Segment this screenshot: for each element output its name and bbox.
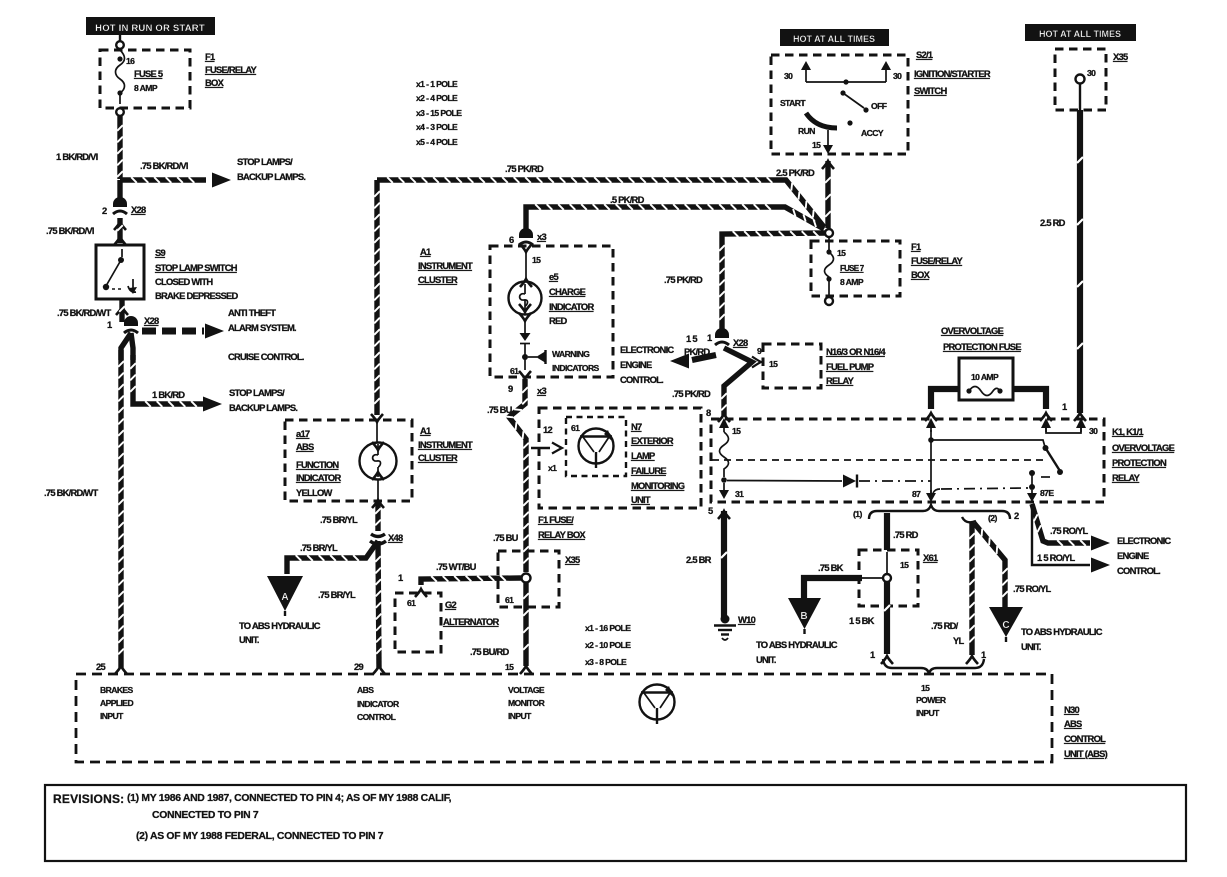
svg-text:STOP LAMPS/: STOP LAMPS/: [229, 387, 285, 398]
svg-text:.75 RO/YL: .75 RO/YL: [1013, 583, 1052, 594]
svg-text:X35: X35: [565, 554, 580, 565]
svg-text:A1: A1: [420, 425, 431, 436]
svg-text:TO ABS HYDRAULIC: TO ABS HYDRAULIC: [756, 639, 838, 650]
svg-text:1 5 BK: 1 5 BK: [849, 615, 875, 626]
svg-text:MONITOR: MONITOR: [508, 698, 546, 708]
svg-text:CLOSED WITH: CLOSED WITH: [155, 276, 213, 287]
svg-text:61: 61: [505, 595, 514, 605]
svg-text:ENGINE: ENGINE: [1117, 550, 1149, 561]
svg-text:.75 BK/RD/WT: .75 BK/RD/WT: [57, 307, 112, 318]
svg-text:1 5 RO/YL: 1 5 RO/YL: [1037, 552, 1076, 563]
svg-text:(1) MY 1986 AND 1987, CONNECTE: (1) MY 1986 AND 1987, CONNECTED TO PIN 4…: [127, 793, 452, 804]
svg-text:16: 16: [126, 56, 135, 66]
svg-text:ALARM SYSTEM.: ALARM SYSTEM.: [228, 322, 296, 333]
svg-text:30: 30: [1089, 426, 1098, 436]
svg-text:X28: X28: [144, 315, 159, 326]
svg-text:.5 PK/RD: .5 PK/RD: [610, 194, 645, 205]
svg-text:CHARGE: CHARGE: [549, 286, 586, 297]
svg-text:UNIT.: UNIT.: [756, 654, 776, 665]
svg-text:INSTRUMENT: INSTRUMENT: [418, 260, 473, 271]
svg-text:LAMP: LAMP: [631, 450, 655, 461]
svg-text:.75 BK: .75 BK: [818, 562, 844, 573]
svg-text:CONTROL.: CONTROL.: [620, 374, 663, 385]
svg-text:X61: X61: [923, 552, 938, 563]
svg-text:15: 15: [532, 255, 541, 265]
svg-text:WARNING: WARNING: [552, 349, 590, 359]
svg-text:15: 15: [505, 662, 514, 672]
svg-text:30: 30: [1087, 68, 1096, 78]
svg-text:FUSE/RELAY: FUSE/RELAY: [911, 255, 964, 266]
svg-text:ABS: ABS: [296, 441, 314, 452]
svg-text:.75 WT/BU: .75 WT/BU: [436, 561, 477, 572]
svg-text:.75 RO/YL: .75 RO/YL: [1050, 525, 1089, 536]
svg-text:30: 30: [893, 71, 902, 81]
svg-text:REVISIONS:: REVISIONS:: [53, 792, 124, 806]
svg-text:15: 15: [921, 683, 930, 693]
svg-text:X35: X35: [1113, 51, 1128, 62]
svg-text:x1: x1: [548, 463, 557, 473]
svg-text:15: 15: [812, 140, 821, 150]
svg-text:.75 PK/RD: .75 PK/RD: [672, 388, 711, 399]
svg-text:RELAY: RELAY: [826, 375, 855, 386]
svg-text:FUEL PUMP: FUEL PUMP: [826, 361, 874, 372]
svg-text:x2 - 10 POLE: x2 - 10 POLE: [585, 640, 631, 650]
svg-text:2.5 PK/RD: 2.5 PK/RD: [776, 167, 815, 178]
svg-text:1: 1: [707, 332, 712, 343]
svg-text:FUSE 7: FUSE 7: [840, 264, 865, 273]
svg-text:2: 2: [102, 205, 107, 216]
svg-text:.75 BR/YL: .75 BR/YL: [318, 589, 356, 600]
svg-text:x3 - 8 POLE: x3 - 8 POLE: [585, 657, 627, 667]
svg-text:.75 RD: .75 RD: [893, 529, 919, 540]
svg-text:1: 1: [981, 649, 986, 660]
svg-text:15: 15: [732, 426, 741, 436]
svg-text:UNIT.: UNIT.: [1021, 641, 1041, 652]
svg-text:B: B: [800, 611, 807, 622]
svg-text:CLUSTER: CLUSTER: [418, 274, 458, 285]
svg-text:OVERVOLTAGE: OVERVOLTAGE: [1112, 442, 1175, 453]
svg-text:61: 61: [407, 598, 416, 608]
svg-text:INPUT: INPUT: [100, 711, 124, 721]
svg-text:FUSE/RELAY: FUSE/RELAY: [205, 64, 258, 75]
svg-text:S9: S9: [155, 247, 166, 258]
svg-text:BACKUP LAMPS.: BACKUP LAMPS.: [229, 402, 297, 413]
svg-text:F1: F1: [205, 51, 215, 62]
svg-text:INSTRUMENT: INSTRUMENT: [418, 439, 473, 450]
svg-text:STOP LAMPS/: STOP LAMPS/: [237, 156, 293, 167]
svg-text:x3: x3: [537, 385, 546, 396]
svg-text:.75 BU: .75 BU: [493, 532, 519, 543]
svg-text:ABS: ABS: [1064, 718, 1082, 729]
svg-text:RUN: RUN: [798, 126, 815, 136]
svg-text:X28: X28: [131, 204, 146, 215]
svg-text:ELECTRONIC: ELECTRONIC: [1117, 535, 1171, 546]
svg-text:VOLTAGE: VOLTAGE: [508, 685, 545, 695]
svg-text:CLUSTER: CLUSTER: [418, 452, 458, 463]
svg-text:15: 15: [837, 248, 846, 258]
svg-text:8: 8: [706, 407, 711, 418]
svg-text:a17: a17: [296, 428, 310, 439]
svg-text:RELAY: RELAY: [1112, 472, 1141, 483]
svg-text:9: 9: [508, 383, 513, 394]
svg-text:87E: 87E: [1040, 488, 1054, 498]
svg-text:RED: RED: [549, 315, 568, 326]
svg-text:C: C: [1002, 620, 1009, 631]
svg-text:W10: W10: [738, 614, 756, 625]
svg-text:BRAKE DEPRESSED: BRAKE DEPRESSED: [155, 290, 238, 301]
svg-text:.75 PK/RD: .75 PK/RD: [505, 163, 544, 174]
svg-text:x1 - 1 POLE: x1 - 1 POLE: [416, 79, 458, 89]
svg-text:x3 - 15 POLE: x3 - 15 POLE: [416, 108, 462, 118]
svg-text:87: 87: [912, 489, 921, 499]
svg-text:F1: F1: [911, 241, 921, 252]
svg-text:IGNITION/STARTER: IGNITION/STARTER: [914, 68, 991, 79]
svg-text:PROTECTION FUSE: PROTECTION FUSE: [943, 341, 1021, 352]
svg-text:.75 BU/RD: .75 BU/RD: [470, 646, 510, 657]
svg-text:30: 30: [784, 71, 793, 81]
svg-text:1: 1: [398, 572, 403, 583]
svg-text:CRUISE CONTROL.: CRUISE CONTROL.: [228, 351, 304, 362]
svg-text:25: 25: [96, 661, 105, 672]
svg-text:POWER: POWER: [916, 695, 947, 705]
svg-text:.75 BK/RD/WT: .75 BK/RD/WT: [44, 487, 99, 498]
svg-text:BRAKES: BRAKES: [100, 685, 134, 695]
svg-text:FUNCTION: FUNCTION: [296, 459, 339, 470]
svg-text:START: START: [780, 98, 806, 108]
svg-text:STOP LAMP SWITCH: STOP LAMP SWITCH: [155, 262, 238, 273]
svg-text:CONTROL.: CONTROL.: [1117, 565, 1160, 576]
svg-text:INDICATOR: INDICATOR: [357, 699, 400, 709]
svg-text:MONITORING: MONITORING: [631, 480, 685, 491]
svg-text:APPLIED: APPLIED: [100, 698, 133, 708]
svg-text:K1, K1/1: K1, K1/1: [1112, 426, 1144, 437]
svg-text:N16/3 OR N16/4: N16/3 OR N16/4: [826, 346, 886, 357]
svg-text:G2: G2: [445, 599, 457, 610]
svg-text:RELAY BOX: RELAY BOX: [538, 529, 586, 540]
svg-text:X28: X28: [733, 337, 748, 348]
svg-text:BACKUP LAMPS.: BACKUP LAMPS.: [237, 171, 305, 182]
svg-text:2: 2: [1014, 510, 1019, 521]
svg-text:.75 RD/: .75 RD/: [931, 620, 959, 631]
svg-text:(2) AS OF MY 1988 FEDERAL, CON: (2) AS OF MY 1988 FEDERAL, CONNECTED TO …: [136, 831, 384, 842]
svg-text:CONNECTED TO PIN 7: CONNECTED TO PIN 7: [152, 810, 259, 821]
svg-text:HOT AT ALL TIMES: HOT AT ALL TIMES: [793, 34, 875, 44]
svg-text:61: 61: [510, 366, 519, 376]
svg-text:1: 1: [870, 649, 875, 660]
svg-text:x3: x3: [537, 231, 546, 242]
svg-text:CONTROL: CONTROL: [1064, 733, 1106, 744]
svg-text:OFF: OFF: [871, 101, 887, 111]
svg-text:29: 29: [354, 661, 363, 672]
svg-text:ALTERNATOR: ALTERNATOR: [443, 616, 499, 627]
svg-text:.75 BU: .75 BU: [487, 404, 513, 415]
svg-text:N7: N7: [631, 421, 642, 432]
svg-text:x5 - 4 POLE: x5 - 4 POLE: [416, 137, 458, 147]
svg-text:1: 1: [107, 319, 112, 330]
svg-text:FUSE 5: FUSE 5: [134, 68, 163, 79]
svg-text:SWITCH: SWITCH: [914, 85, 947, 96]
svg-text:HOT AT ALL TIMES: HOT AT ALL TIMES: [1039, 29, 1121, 39]
svg-text:2.5 RD: 2.5 RD: [1040, 217, 1066, 228]
svg-text:INPUT: INPUT: [916, 708, 940, 718]
svg-text:(2): (2): [988, 513, 997, 523]
svg-text:F1 FUSE/: F1 FUSE/: [538, 514, 574, 525]
svg-text:6: 6: [509, 234, 514, 245]
svg-text:INDICATOR: INDICATOR: [549, 301, 594, 312]
svg-text:x4 - 3 POLE: x4 - 3 POLE: [416, 122, 458, 132]
svg-text:61: 61: [571, 423, 580, 433]
svg-text:1 5: 1 5: [686, 333, 697, 344]
svg-text:15: 15: [769, 359, 778, 369]
svg-text:ABS: ABS: [357, 685, 374, 695]
svg-text:8 AMP: 8 AMP: [134, 83, 158, 93]
svg-text:2.5 BR: 2.5 BR: [686, 554, 712, 565]
svg-text:EXTERIOR: EXTERIOR: [631, 435, 674, 446]
svg-text:S2/1: S2/1: [916, 49, 933, 60]
svg-text:x1 - 16 POLE: x1 - 16 POLE: [585, 623, 631, 633]
svg-text:x2 - 4 POLE: x2 - 4 POLE: [416, 93, 458, 103]
svg-text:YELLOW: YELLOW: [296, 487, 333, 498]
svg-text:INDICATOR: INDICATOR: [296, 472, 341, 483]
svg-text:A: A: [281, 592, 288, 603]
svg-text:15: 15: [900, 560, 909, 570]
svg-text:X48: X48: [388, 532, 403, 543]
svg-text:1 BK/RD: 1 BK/RD: [152, 389, 185, 400]
svg-text:PROTECTION: PROTECTION: [1112, 457, 1167, 468]
svg-text:BOX: BOX: [911, 269, 931, 280]
svg-text:12: 12: [543, 424, 552, 435]
svg-text:OVERVOLTAGE: OVERVOLTAGE: [941, 325, 1004, 336]
svg-text:31: 31: [735, 489, 744, 499]
svg-text:e5: e5: [549, 271, 558, 282]
svg-text:BOX: BOX: [205, 77, 225, 88]
svg-text:ENGINE: ENGINE: [620, 359, 652, 370]
svg-text:5: 5: [708, 505, 713, 516]
svg-text:TO ABS HYDRAULIC: TO ABS HYDRAULIC: [1021, 626, 1103, 637]
svg-text:ANTI THEFT: ANTI THEFT: [228, 307, 276, 318]
svg-text:YL: YL: [953, 635, 965, 646]
svg-text:.75 BR/YL: .75 BR/YL: [320, 514, 358, 525]
svg-text:.75 BK/RD/VI: .75 BK/RD/VI: [140, 160, 188, 171]
svg-text:FAILURE: FAILURE: [631, 465, 666, 476]
svg-text:TO ABS HYDRAULIC: TO ABS HYDRAULIC: [239, 620, 321, 631]
svg-text:(1): (1): [853, 509, 862, 519]
svg-text:8 AMP: 8 AMP: [840, 277, 864, 287]
svg-text:N30: N30: [1064, 704, 1079, 715]
svg-text:INPUT: INPUT: [508, 711, 532, 721]
svg-text:UNIT.: UNIT.: [239, 634, 259, 645]
svg-text:.75 PK/RD: .75 PK/RD: [664, 274, 703, 285]
svg-text:10 AMP: 10 AMP: [971, 372, 999, 382]
svg-text:HOT IN RUN OR START: HOT IN RUN OR START: [95, 23, 205, 34]
svg-text:1: 1: [1062, 401, 1067, 412]
svg-text:ACCY: ACCY: [861, 128, 884, 138]
svg-text:.75 BR/YL: .75 BR/YL: [300, 542, 338, 553]
svg-text:UNIT (ABS): UNIT (ABS): [1064, 748, 1108, 759]
svg-text:INDICATORS: INDICATORS: [552, 363, 600, 373]
svg-text:1 BK/RD/VI: 1 BK/RD/VI: [56, 151, 98, 162]
svg-text:A1: A1: [420, 246, 431, 257]
svg-text:CONTROL: CONTROL: [357, 712, 396, 722]
svg-text:ELECTRONIC: ELECTRONIC: [620, 344, 674, 355]
svg-text:.75 BK/RD/VI: .75 BK/RD/VI: [46, 225, 94, 236]
svg-text:UNIT: UNIT: [631, 494, 651, 505]
